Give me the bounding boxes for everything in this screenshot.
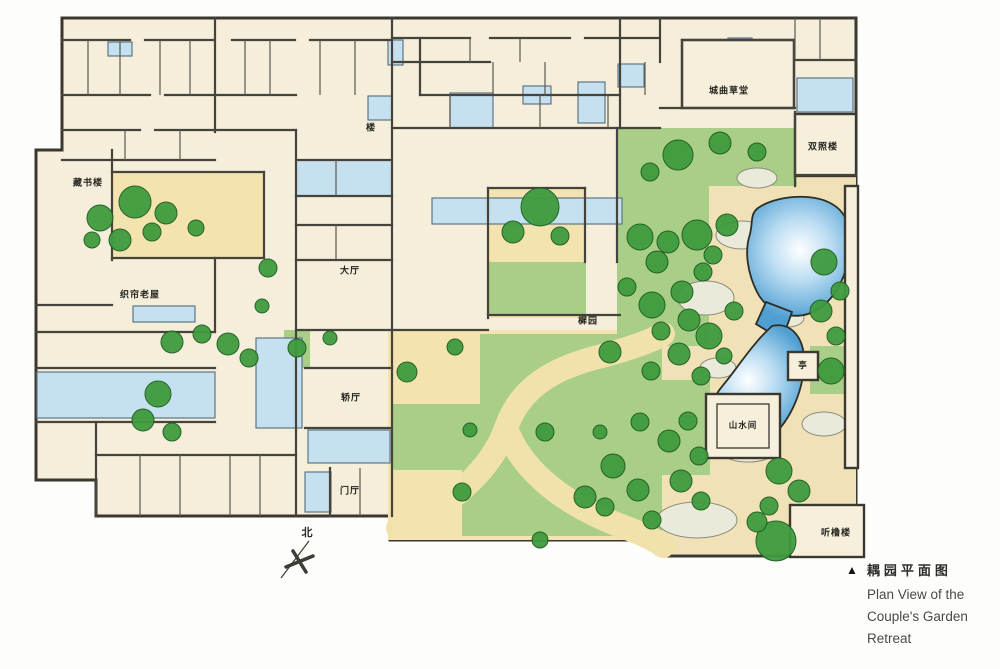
figure-caption: ▲ 耦园平面图 Plan View of the Couple's Garden… (846, 560, 998, 650)
plan-label-shanshuijian: 山水间 (729, 419, 758, 431)
tree-icon (747, 512, 767, 532)
plan-label-dating: 大厅 (340, 264, 360, 277)
tree-icon (119, 186, 151, 218)
tree-icon (536, 423, 554, 441)
plan-label-shuangzhaolou: 双照楼 (808, 140, 838, 153)
courtyard-pool (305, 472, 331, 512)
north-label: 北 (302, 524, 313, 540)
rockery-stone (802, 412, 846, 436)
plan-label-xiyuan: 樨园 (578, 314, 598, 327)
tree-icon (678, 309, 700, 331)
tree-icon (255, 299, 269, 313)
tree-icon (87, 205, 113, 231)
tree-icon (766, 458, 792, 484)
tree-icon (521, 188, 559, 226)
caption-en-line3: Retreat (867, 628, 998, 650)
east-corridor (845, 186, 858, 468)
tree-icon (132, 409, 154, 431)
tree-icon (593, 425, 607, 439)
plan-label-tingchulou: 听橹楼 (821, 526, 851, 539)
tree-icon (596, 498, 614, 516)
tree-icon (639, 292, 665, 318)
courtyard-pool (308, 430, 390, 463)
tree-icon (692, 492, 710, 510)
tree-icon (193, 325, 211, 343)
tree-icon (716, 214, 738, 236)
tree-icon (627, 479, 649, 501)
tree-icon (109, 229, 131, 251)
north-compass-icon (281, 541, 313, 578)
tree-icon (668, 343, 690, 365)
tree-icon (696, 323, 722, 349)
tree-icon (682, 220, 712, 250)
tree-icon (532, 532, 548, 548)
rockery-stone (737, 168, 777, 188)
tree-icon (259, 259, 277, 277)
tree-icon (692, 367, 710, 385)
tree-icon (811, 249, 837, 275)
tree-icon (453, 483, 471, 501)
tree-icon (646, 251, 668, 273)
plan-label-ting: 亭 (798, 359, 808, 371)
tree-icon (810, 300, 832, 322)
caption-marker-icon: ▲ (846, 564, 858, 576)
tree-icon (657, 231, 679, 253)
tree-icon (618, 278, 636, 296)
tree-icon (716, 348, 732, 364)
tree-icon (145, 381, 171, 407)
tree-icon (397, 362, 417, 382)
tree-icon (658, 430, 680, 452)
plan-label-chengqu-caotang: 城曲草堂 (709, 84, 749, 97)
tree-icon (679, 412, 697, 430)
tree-icon (709, 132, 731, 154)
tree-icon (323, 331, 337, 345)
tree-icon (627, 224, 653, 250)
tree-icon (788, 480, 810, 502)
courtyard-pool (450, 93, 493, 128)
tree-icon (601, 454, 625, 478)
tree-icon (760, 497, 778, 515)
tree-icon (574, 486, 596, 508)
courtyard-pool (368, 96, 392, 120)
tree-icon (818, 358, 844, 384)
tree-icon (643, 511, 661, 529)
tree-icon (663, 140, 693, 170)
tree-icon (641, 163, 659, 181)
plan-label-jiaoting: 轿厅 (341, 391, 361, 404)
courtyard-pool (578, 82, 605, 123)
tree-icon (631, 413, 649, 431)
plan-label-zhilian-laowu: 织帘老屋 (120, 288, 160, 301)
plan-label-cangshulou: 藏书楼 (73, 176, 103, 189)
chengqu-caotang-hall (682, 40, 794, 108)
tree-icon (143, 223, 161, 241)
tree-icon (725, 302, 743, 320)
courtyard-pool (797, 78, 853, 112)
courtyard-pool (618, 64, 644, 87)
tree-icon (163, 423, 181, 441)
tree-icon (831, 282, 849, 300)
tree-icon (240, 349, 258, 367)
tree-icon (827, 327, 845, 345)
courtyard-pool (37, 372, 215, 418)
tree-icon (748, 143, 766, 161)
tree-icon (155, 202, 177, 224)
tree-icon (670, 470, 692, 492)
tree-icon (447, 339, 463, 355)
tree-icon (671, 281, 693, 303)
tree-icon (551, 227, 569, 245)
caption-en-line1: Plan View of the (867, 584, 998, 606)
tree-icon (84, 232, 100, 248)
tree-icon (217, 333, 239, 355)
plan-label-menting: 门厅 (340, 484, 360, 497)
tree-icon (599, 341, 621, 363)
garden-plan-page: 藏书楼 城曲草堂 双照楼 楼 织帘老屋 大厅 樨园 轿厅 山水间 亭 门厅 听橹… (0, 0, 1000, 669)
plan-label-lou: 楼 (366, 121, 376, 134)
courtyard-pool (296, 160, 392, 196)
tree-icon (642, 362, 660, 380)
lawn-area (488, 262, 586, 315)
tree-icon (188, 220, 204, 236)
tree-icon (161, 331, 183, 353)
tree-icon (463, 423, 477, 437)
tree-icon (690, 447, 708, 465)
tree-icon (704, 246, 722, 264)
caption-en-line2: Couple's Garden (867, 606, 998, 628)
tree-icon (502, 221, 524, 243)
caption-title-zh: 耦园平面图 (867, 560, 952, 579)
tree-icon (288, 339, 306, 357)
courtyard-pool (133, 306, 195, 322)
tree-icon (652, 322, 670, 340)
tree-icon (694, 263, 712, 281)
